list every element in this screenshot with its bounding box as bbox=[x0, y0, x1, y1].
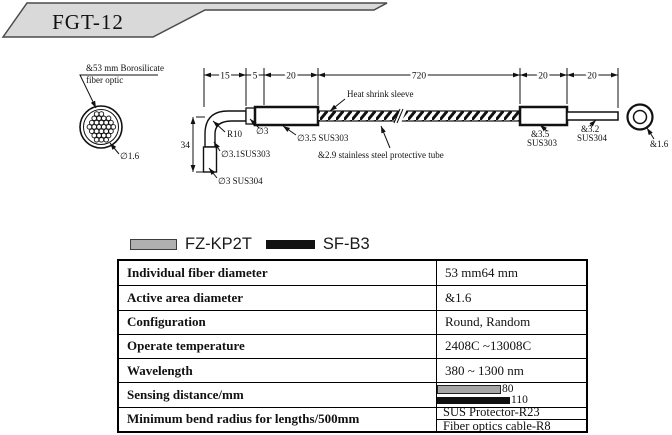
row-label: Minimum bend radius for lengths/500mm bbox=[119, 408, 437, 431]
spec-table: Individual fiber diameter 53 mm64 mm Act… bbox=[117, 259, 588, 433]
sensing-bar-gray bbox=[437, 385, 501, 394]
legend-black-swatch bbox=[266, 240, 315, 249]
right-d35-line2: SUS303 bbox=[527, 138, 558, 148]
dim-34: 34 bbox=[181, 141, 191, 151]
vertical-dimension: 34 bbox=[181, 117, 206, 172]
heat-shrink-label: Heat shrink sleeve bbox=[347, 89, 413, 99]
sensing-bar-black bbox=[437, 397, 510, 404]
page-title: FGT-12 bbox=[52, 10, 124, 34]
right-thick-section bbox=[520, 107, 567, 125]
row-value-stack: SUS Protector-R23 Fiber optics cable-R8 bbox=[437, 408, 586, 431]
end-view-label: &1.6 bbox=[650, 139, 669, 149]
tip-d3-label: ∅3 SUS304 bbox=[218, 176, 263, 186]
heat-shrink-tube bbox=[318, 111, 520, 121]
row-value-line2: Fiber optics cable-R8 bbox=[437, 420, 586, 431]
active-area-label: ∅1.6 bbox=[120, 151, 140, 161]
collar bbox=[246, 108, 255, 124]
dim-20c: 20 bbox=[587, 72, 597, 82]
legend-label-sfb3: SF-B3 bbox=[323, 235, 370, 254]
table-row-bend-radius: Minimum bend radius for lengths/500mm SU… bbox=[119, 407, 586, 431]
dim-15: 15 bbox=[220, 72, 230, 82]
protective-tube-leader bbox=[381, 126, 390, 148]
sensing-bar-black-line: 110 bbox=[437, 395, 586, 406]
dim-20a: 20 bbox=[286, 72, 296, 82]
row-value: 380 ~ 1300 nm bbox=[437, 359, 586, 382]
row-label: Active area diameter bbox=[119, 286, 437, 309]
bend-radius-label: R10 bbox=[227, 129, 243, 139]
table-row: Individual fiber diameter 53 mm64 mm bbox=[119, 261, 586, 285]
legend: FZ-KP2T SF-B3 bbox=[130, 234, 370, 254]
row-value: Round, Random bbox=[437, 311, 586, 334]
right-thin-section bbox=[567, 112, 618, 120]
sleeve-d35-leader bbox=[283, 126, 296, 135]
active-area-leader bbox=[110, 143, 119, 154]
title-badge: FGT-12 bbox=[3, 3, 387, 37]
row-value: &1.6 bbox=[437, 286, 586, 309]
end-view-leader bbox=[647, 128, 654, 139]
callouts: R10 ∅3 ∅3.5 SUS303 ∅3.1SUS303 ∅3 SUS304 … bbox=[209, 89, 608, 186]
vertical-d31-label: ∅3.1SUS303 bbox=[221, 149, 271, 159]
datasheet-page: FGT-12 &53 mm Borosilicate fiber optic ∅… bbox=[0, 0, 672, 435]
row-label: Sensing distance/mm bbox=[119, 383, 437, 406]
table-row: Operate temperature 2408C ~13008C bbox=[119, 334, 586, 358]
sleeve-section bbox=[255, 107, 318, 125]
row-label: Wavelength bbox=[119, 359, 437, 382]
fiber-cross-section bbox=[80, 106, 122, 148]
table-row: Active area diameter &1.6 bbox=[119, 285, 586, 309]
sensing-distance-bars: 80 110 bbox=[437, 383, 586, 406]
sensing-bar-black-value: 110 bbox=[511, 395, 528, 407]
protective-tube-label: &2.9 stainless steel protective tube bbox=[318, 150, 444, 160]
table-row: Configuration Round, Random bbox=[119, 310, 586, 334]
fiber-note-line1: &53 mm Borosilicate bbox=[86, 63, 164, 73]
right-d32-line2: SUS304 bbox=[577, 133, 608, 143]
row-label: Operate temperature bbox=[119, 335, 437, 358]
dimension-labels: 15 5 20 720 20 20 bbox=[220, 72, 597, 82]
row-label: Individual fiber diameter bbox=[119, 261, 437, 285]
fiber-note-line2: fiber optic bbox=[86, 75, 123, 85]
table-row-sensing-distance: Sensing distance/mm 80 110 bbox=[119, 382, 586, 406]
legend-gray-swatch bbox=[130, 239, 177, 250]
heat-shrink-leader bbox=[330, 99, 345, 111]
legend-label-fzkp2t: FZ-KP2T bbox=[185, 235, 252, 254]
row-value: 2408C ~13008C bbox=[437, 335, 586, 358]
sleeve-d35-label: ∅3.5 SUS303 bbox=[297, 133, 349, 143]
end-view-inner-ring bbox=[634, 111, 647, 124]
table-row: Wavelength 380 ~ 1300 nm bbox=[119, 358, 586, 382]
row-label: Configuration bbox=[119, 311, 437, 334]
tip-segment bbox=[204, 147, 217, 172]
dim-20b: 20 bbox=[538, 72, 548, 82]
probe-drawing: FGT-12 &53 mm Borosilicate fiber optic ∅… bbox=[0, 0, 672, 232]
end-view: &1.6 bbox=[628, 105, 669, 150]
row-value: 53 mm64 mm bbox=[437, 261, 586, 285]
dim-5: 5 bbox=[253, 72, 258, 82]
dim-720: 720 bbox=[412, 72, 427, 82]
